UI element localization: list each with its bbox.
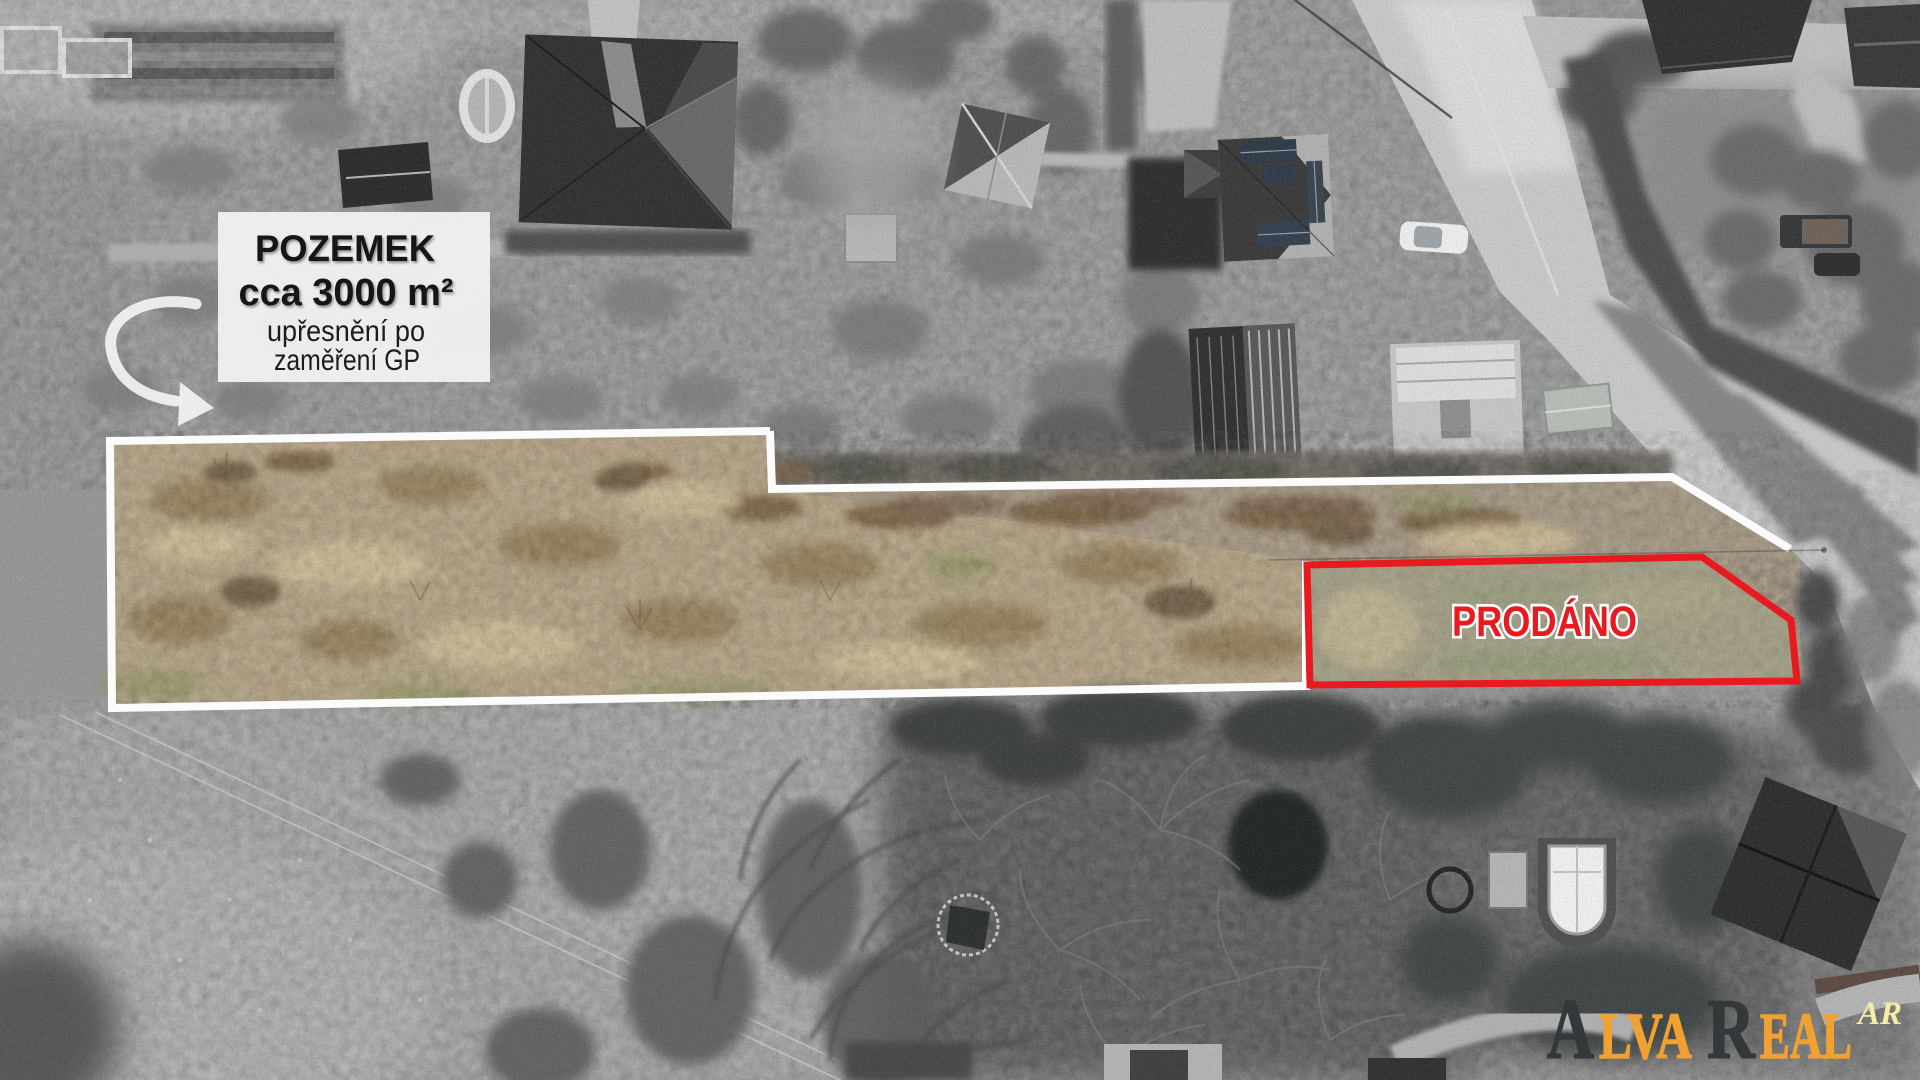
svg-text:A: A <box>1547 981 1594 1077</box>
svg-text:R: R <box>1707 981 1756 1077</box>
svg-text:zaměření GP: zaměření GP <box>274 344 420 377</box>
svg-text:EAL: EAL <box>1760 1000 1852 1073</box>
svg-text:LVA: LVA <box>1599 1000 1692 1073</box>
svg-text:POZEMEK: POZEMEK <box>255 228 435 269</box>
svg-text:cca 3000 m²: cca 3000 m² <box>239 272 454 314</box>
svg-text:AR: AR <box>1856 996 1902 1032</box>
svg-text:PRODÁNO: PRODÁNO <box>1452 598 1637 646</box>
